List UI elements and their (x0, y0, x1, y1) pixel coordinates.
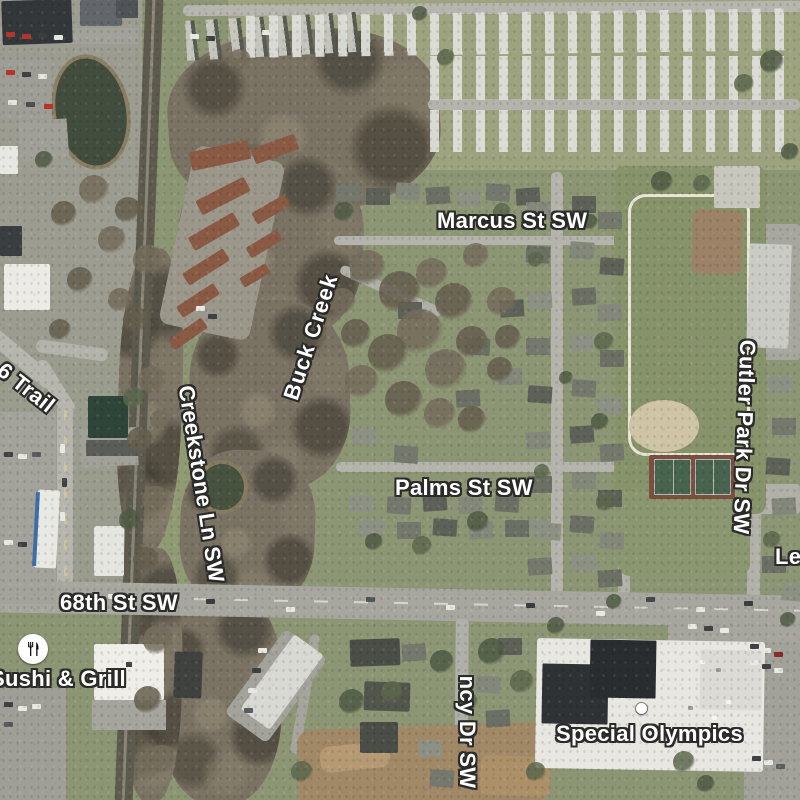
car (366, 597, 375, 602)
tree (67, 267, 93, 293)
tree (495, 325, 521, 351)
car (22, 72, 31, 77)
car (762, 664, 771, 669)
tree (127, 427, 153, 453)
house (527, 557, 552, 576)
rooftop-unit (700, 660, 705, 664)
house (432, 518, 457, 537)
house (598, 212, 622, 229)
tree (123, 307, 149, 333)
street-label-marcus-st-sw: Marcus St SW (437, 210, 587, 232)
tree (350, 250, 386, 286)
poi-label-sushi-and-grill[interactable]: Sushi & Grill (0, 668, 126, 690)
street-label-ncy-dr-sw: ncy Dr SW (456, 676, 478, 789)
tree (133, 547, 159, 573)
tree (425, 349, 467, 391)
tree (424, 398, 456, 430)
tree (115, 197, 141, 223)
house (418, 740, 442, 757)
building (746, 243, 792, 348)
car (4, 452, 13, 457)
tree (547, 617, 565, 635)
house (571, 553, 596, 572)
building (0, 146, 18, 174)
house (781, 583, 800, 602)
house (527, 385, 552, 404)
car (750, 660, 759, 665)
house (765, 457, 790, 476)
tree (381, 681, 403, 703)
tree (143, 625, 173, 655)
house (455, 389, 480, 408)
tree (133, 245, 163, 275)
building (173, 652, 203, 699)
tree (341, 319, 371, 349)
tree (526, 762, 546, 782)
car (206, 599, 215, 604)
car (596, 611, 605, 616)
tree (458, 406, 486, 434)
car (26, 102, 35, 107)
tree (412, 6, 428, 22)
car (18, 706, 27, 711)
tree (734, 74, 754, 94)
tennis-court (695, 459, 731, 495)
car (696, 607, 705, 612)
car (4, 722, 13, 727)
street-label-cutler-park-dr-sw: Cutler Park Dr SW (730, 339, 759, 534)
house (429, 769, 454, 788)
car (44, 104, 53, 109)
house (456, 190, 480, 207)
tree (142, 486, 170, 514)
car (526, 603, 535, 608)
house (485, 709, 510, 728)
road-palms-st (336, 462, 636, 472)
tree (123, 387, 145, 409)
car (248, 688, 257, 693)
road (428, 99, 800, 110)
house (525, 431, 550, 450)
house (571, 287, 596, 306)
house (401, 643, 426, 662)
poi-label-special-olympics[interactable]: Special Olympics (556, 723, 743, 745)
car (688, 624, 697, 629)
tree (467, 511, 489, 533)
house (536, 522, 561, 541)
house (600, 350, 624, 367)
house (599, 443, 624, 462)
car (752, 756, 761, 761)
restaurant-poi-icon[interactable] (18, 634, 48, 664)
tree (435, 283, 473, 321)
car (190, 34, 199, 39)
tree (487, 287, 517, 317)
tree (456, 326, 488, 358)
tree (463, 243, 489, 269)
car (18, 454, 27, 459)
tree (559, 371, 573, 385)
satellite-map[interactable]: Marcus St SW Palms St SW 68th St SW Cree… (0, 0, 800, 800)
tree (79, 175, 109, 205)
apartment-building (360, 722, 398, 753)
car (774, 668, 783, 673)
tree (51, 201, 77, 227)
house (570, 334, 594, 351)
car (762, 648, 771, 653)
tree (365, 533, 383, 551)
building (94, 526, 124, 576)
tree (229, 49, 251, 71)
tree (150, 410, 170, 430)
house (366, 188, 390, 205)
car (6, 70, 15, 75)
mobile-home-row (430, 110, 798, 152)
car (22, 34, 31, 39)
tree (487, 357, 513, 383)
tree (49, 319, 71, 341)
car (60, 444, 65, 453)
tree (368, 334, 408, 374)
car (286, 607, 295, 612)
tree (591, 413, 609, 431)
building (699, 649, 762, 710)
tree (760, 50, 784, 74)
tree (334, 202, 354, 222)
house (569, 515, 594, 534)
tennis-court (654, 459, 691, 495)
tree (780, 612, 796, 628)
rooftop-unit (126, 662, 132, 667)
house (772, 418, 796, 435)
car (32, 452, 41, 457)
house (597, 303, 622, 322)
building (0, 226, 22, 256)
car (60, 512, 65, 521)
house (393, 445, 418, 464)
car (6, 32, 15, 37)
tree (119, 509, 141, 531)
car (4, 540, 13, 545)
tree (510, 670, 534, 694)
house (425, 186, 450, 205)
car (4, 702, 13, 707)
fork-knife-icon (25, 641, 41, 657)
tree (594, 332, 614, 352)
car (252, 668, 261, 673)
tree (430, 650, 454, 674)
tree (108, 288, 132, 312)
mobile-home-row (246, 8, 792, 58)
house (527, 291, 552, 310)
house (569, 241, 594, 260)
tree (528, 252, 544, 268)
rooftop-unit (688, 706, 693, 710)
car (750, 644, 759, 649)
car (446, 605, 455, 610)
tree (673, 751, 695, 773)
house (771, 497, 796, 516)
baseball-infield (629, 400, 699, 452)
rooftop-unit (716, 668, 721, 672)
street-label-le-partial: Le (775, 546, 800, 568)
house (485, 183, 510, 202)
tree (385, 381, 423, 419)
house (349, 495, 373, 512)
tree (697, 775, 715, 793)
tree (437, 49, 455, 67)
building (116, 0, 138, 18)
concrete-pad (714, 166, 760, 208)
tree (606, 594, 622, 610)
car (54, 35, 63, 40)
tree (291, 761, 313, 783)
tree (651, 171, 673, 193)
house (597, 569, 622, 588)
car (32, 704, 41, 709)
rooftop-unit (726, 700, 731, 704)
house (505, 520, 529, 537)
building-roof-dark (589, 639, 656, 698)
car (720, 628, 729, 633)
house (569, 425, 594, 444)
house (599, 531, 624, 550)
house (526, 338, 550, 355)
apartment-building (350, 638, 401, 667)
car (774, 652, 783, 657)
tree (412, 536, 432, 556)
car (262, 30, 271, 35)
car (38, 74, 47, 79)
car (208, 314, 217, 319)
car (244, 708, 253, 713)
special-olympics-poi-dot[interactable] (636, 703, 647, 714)
tree (478, 638, 506, 666)
car (258, 648, 267, 653)
house (597, 396, 622, 415)
house (395, 182, 420, 201)
street-label-palms-st-sw: Palms St SW (395, 477, 533, 499)
road (551, 172, 563, 616)
building (4, 264, 50, 310)
car (8, 100, 17, 105)
playground (691, 209, 743, 275)
car (744, 601, 753, 606)
house (335, 183, 360, 202)
car (764, 760, 773, 765)
tree (781, 143, 799, 161)
tree (98, 226, 126, 254)
car (206, 36, 215, 41)
street-label-68th-st-sw: 68th St SW (60, 592, 178, 614)
car (646, 597, 655, 602)
car (18, 542, 27, 547)
tree (339, 689, 365, 715)
car (776, 764, 785, 769)
car (196, 306, 205, 311)
tree (596, 492, 616, 512)
building (88, 396, 128, 438)
car (38, 33, 47, 38)
tree (534, 464, 550, 480)
road-median-dashes (64, 410, 67, 602)
tree (345, 365, 379, 399)
parking-lot (0, 60, 52, 118)
house (352, 428, 376, 445)
house (572, 472, 596, 489)
car (62, 478, 67, 487)
rooftop-unit (712, 716, 717, 720)
tree (379, 271, 421, 313)
house (767, 375, 792, 394)
car (704, 626, 713, 631)
tree (693, 175, 711, 193)
house (571, 379, 596, 398)
tree (147, 745, 177, 775)
house (599, 257, 624, 276)
tree (35, 151, 53, 169)
tree (134, 686, 162, 714)
